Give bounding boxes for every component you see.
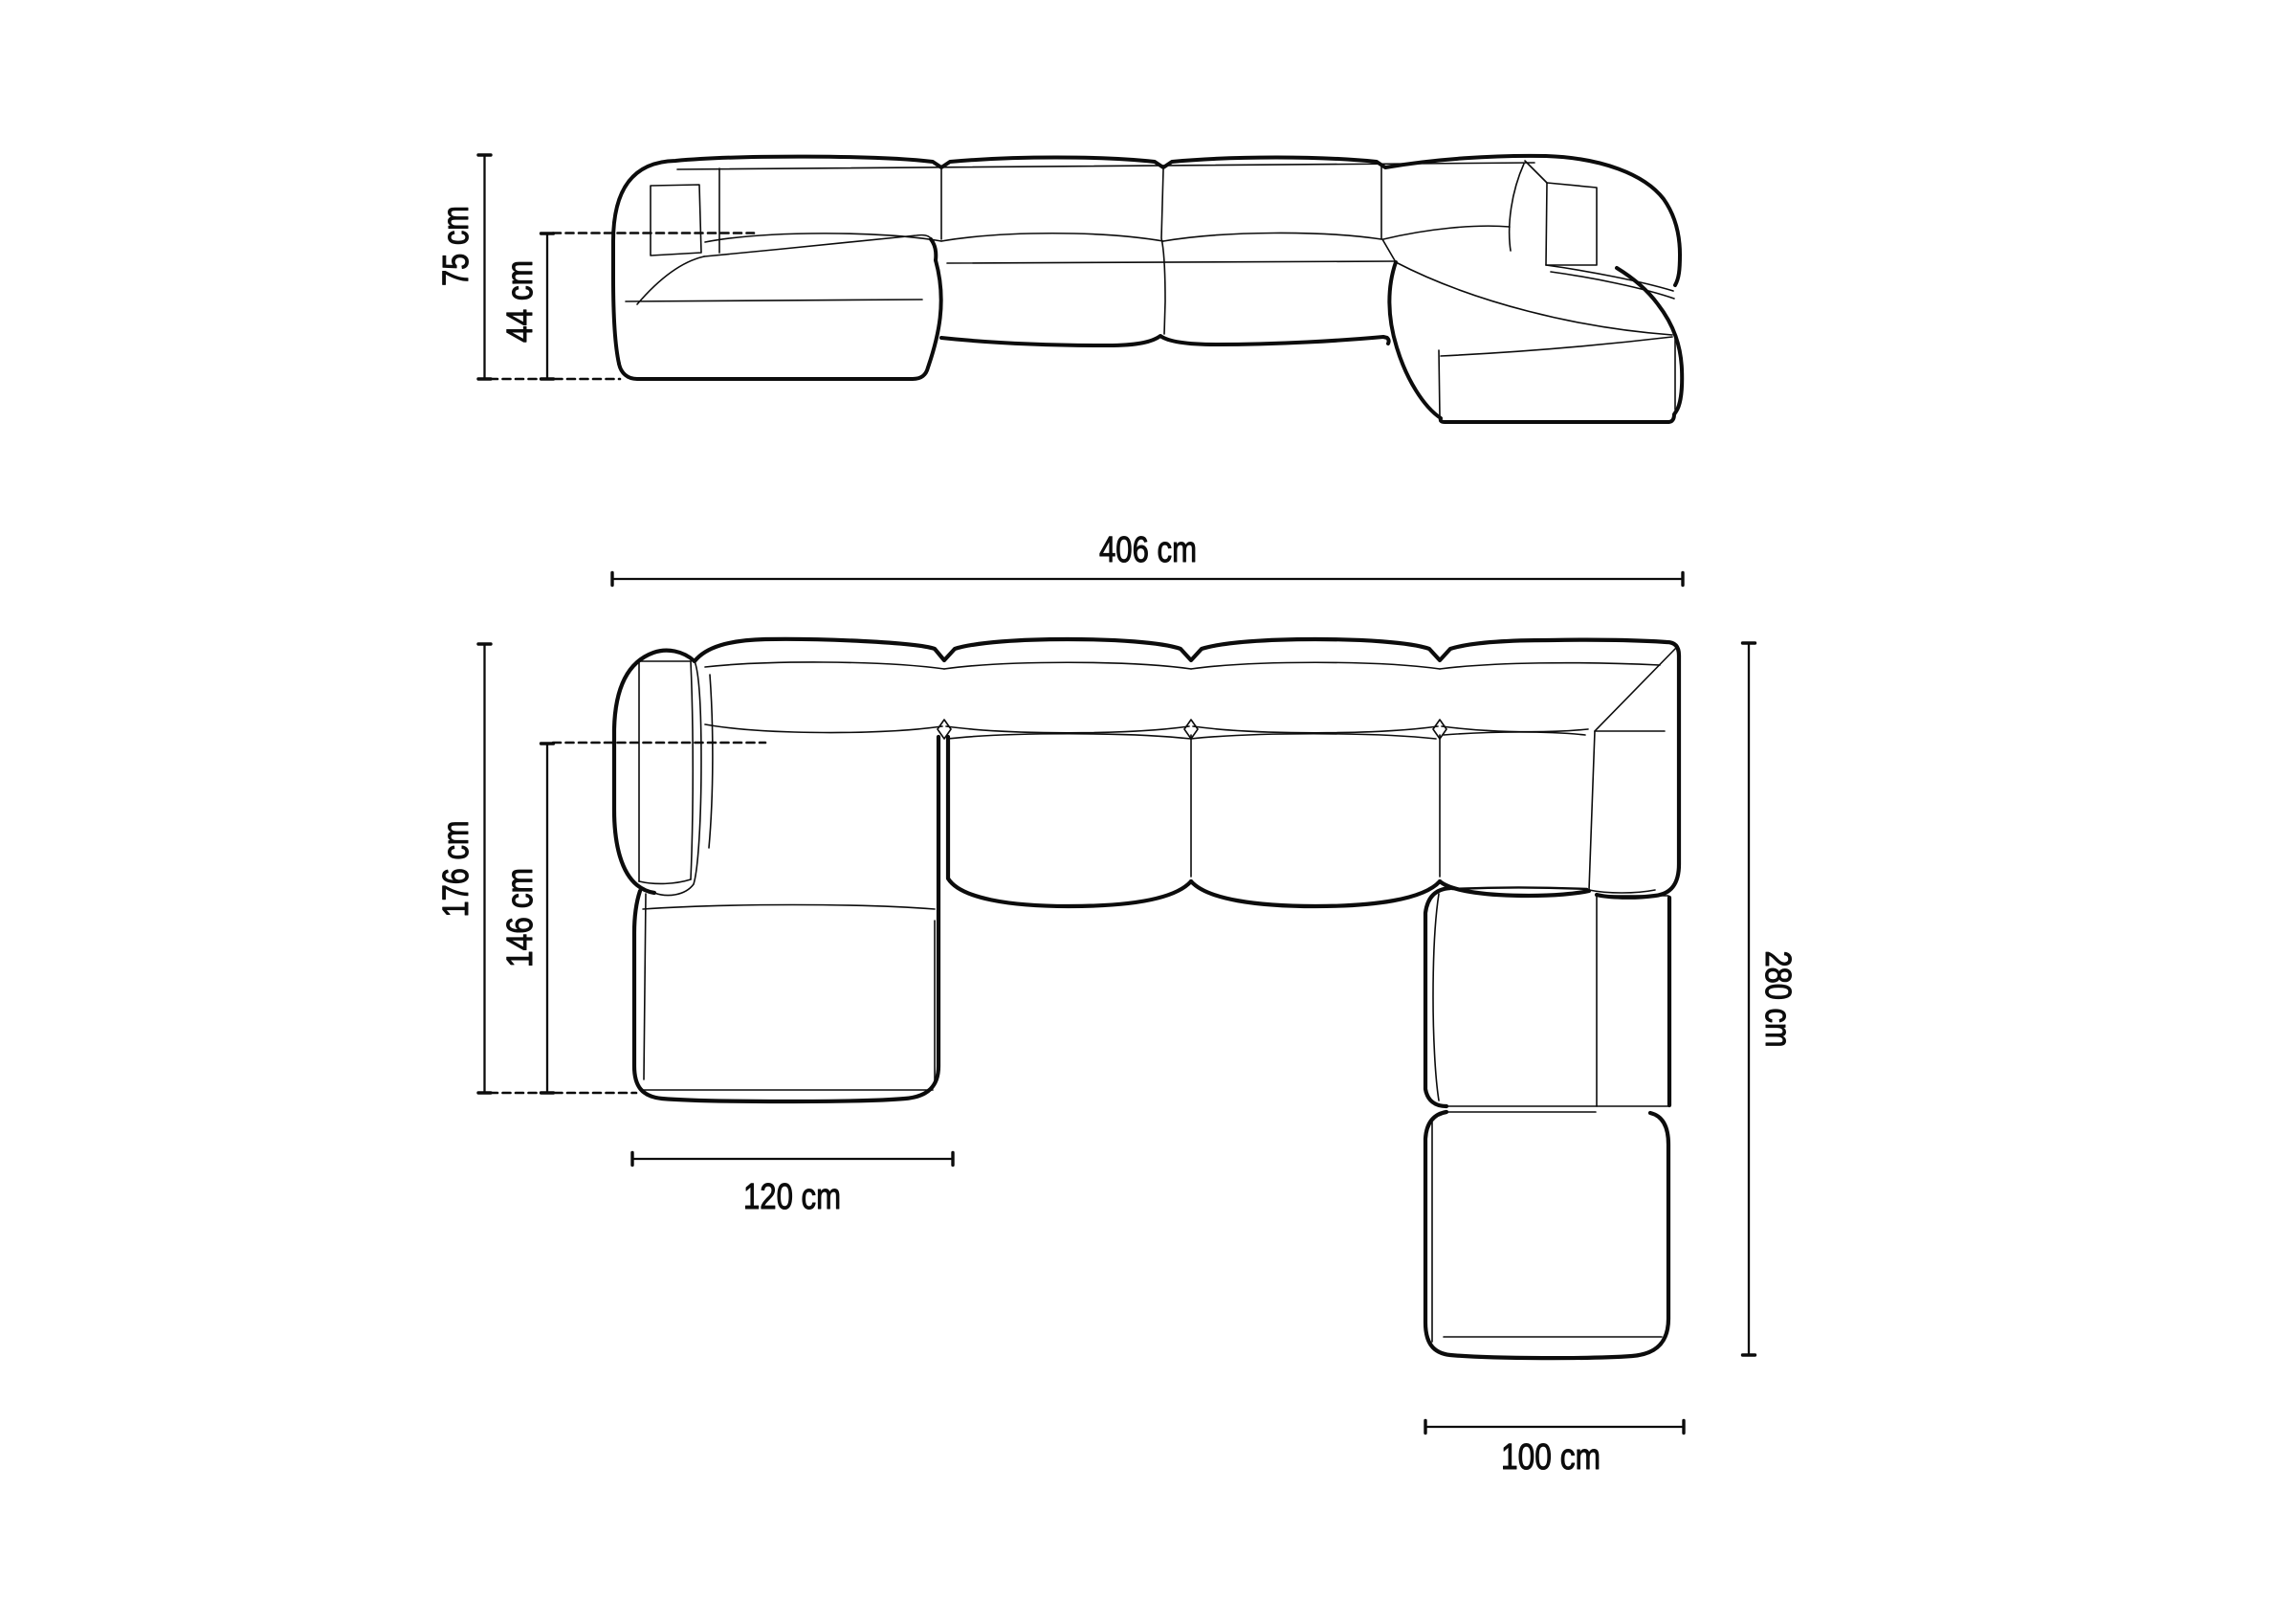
svg-text:280 cm: 280 cm: [1757, 951, 1798, 1048]
svg-text:176 cm: 176 cm: [436, 821, 476, 918]
svg-text:44 cm: 44 cm: [500, 260, 541, 343]
svg-text:100 cm: 100 cm: [1501, 1437, 1601, 1478]
svg-text:406 cm: 406 cm: [1099, 530, 1197, 570]
svg-text:146 cm: 146 cm: [500, 868, 541, 967]
svg-text:120 cm: 120 cm: [743, 1177, 841, 1217]
svg-text:75 cm: 75 cm: [436, 206, 476, 286]
